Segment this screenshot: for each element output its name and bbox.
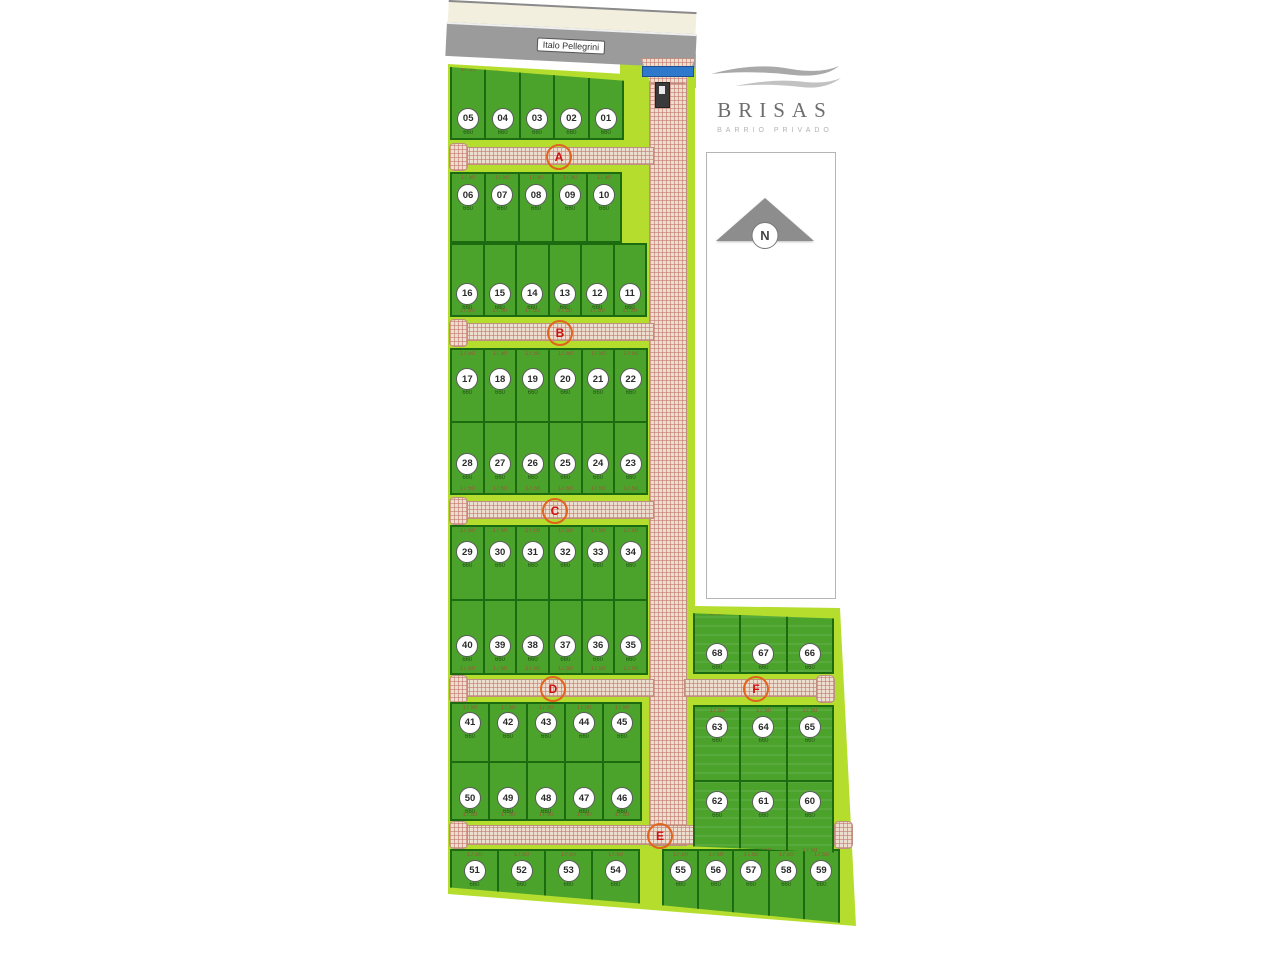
lot-22: 2217.50660 [613, 350, 646, 421]
lot-number-12: 12 [586, 283, 608, 305]
lot-row: 5017.506604917.506604817.506604717.50660… [452, 761, 640, 820]
lot-41: 4117.50660 [452, 704, 488, 761]
lot-area: 660 [517, 475, 548, 481]
lot-frontage: 17.50 [583, 528, 614, 534]
lot-area: 660 [550, 563, 581, 569]
lot-area: 660 [452, 130, 484, 136]
lot-area: 660 [604, 734, 640, 740]
lot-12: 1217.50660 [580, 245, 613, 315]
lot-number-36: 36 [587, 635, 609, 657]
lot-area: 660 [550, 390, 581, 396]
lot-number-13: 13 [554, 283, 576, 305]
lot-number-16: 16 [456, 283, 478, 305]
lot-number-18: 18 [489, 368, 511, 390]
lot-area: 660 [485, 657, 516, 663]
lot-frontage: 17.50 [485, 666, 516, 672]
lot-number-38: 38 [522, 635, 544, 657]
street-label-F: F [743, 676, 769, 702]
lot-area: 660 [485, 390, 516, 396]
lot-number-65: 65 [799, 716, 821, 738]
lot-number-43: 43 [535, 712, 557, 734]
lot-number-40: 40 [456, 635, 478, 657]
lot-number-60: 60 [799, 791, 821, 813]
lot-row: 6317.506606417.506606517.50660 [695, 707, 832, 780]
entrance-gate-bar [642, 66, 694, 77]
street-E-bulb-left [449, 821, 468, 849]
lot-number-09: 09 [559, 184, 581, 206]
lot-frontage: 17.50 [452, 528, 483, 534]
lot-08: 0817.50660 [518, 174, 552, 241]
lot-area: 660 [486, 130, 518, 136]
lot-area: 660 [664, 882, 697, 888]
lot-number-37: 37 [554, 635, 576, 657]
lot-area: 660 [588, 206, 620, 212]
lot-48: 4817.50660 [526, 763, 564, 820]
lot-number-22: 22 [620, 368, 642, 390]
lot-09: 0917.50660 [552, 174, 586, 241]
lot-number-66: 66 [799, 643, 821, 665]
lot-29: 2917.50660 [452, 527, 483, 599]
lot-number-28: 28 [456, 453, 478, 475]
lot-17: 1717.50660 [452, 350, 483, 421]
lot-area: 660 [490, 809, 526, 815]
lot-frontage: 17.50 [490, 705, 526, 711]
lot-number-55: 55 [670, 860, 692, 882]
lot-frontage: 17.50 [615, 528, 646, 534]
lot-frontage: 17.50 [741, 708, 785, 714]
waves-icon [705, 60, 845, 96]
lot-frontage: 17.50 [517, 666, 548, 672]
lot-04: 0417.50660 [484, 66, 518, 138]
lot-number-07: 07 [491, 184, 513, 206]
lot-area: 660 [452, 882, 497, 888]
north-arrow: N [712, 198, 818, 250]
lot-23: 2317.50660 [613, 423, 646, 494]
lot-area: 660 [582, 305, 613, 311]
lot-frontage: 17.50 [499, 852, 544, 858]
lot-25: 2517.50660 [548, 423, 581, 494]
lot-area: 660 [583, 475, 614, 481]
lot-36: 3617.50660 [581, 601, 614, 673]
lot-20: 2017.50660 [548, 350, 581, 421]
lot-frontage: 17.50 [604, 705, 640, 711]
lot-block-5: 2917.506603017.506603117.506603217.50660… [450, 525, 648, 675]
lot-area: 660 [517, 657, 548, 663]
lot-row: 4017.506603917.506603817.506603717.50660… [452, 599, 646, 673]
lot-number-57: 57 [740, 860, 762, 882]
lot-05: 0517.50660 [452, 66, 484, 138]
lot-number-15: 15 [489, 283, 511, 305]
lot-area: 660 [699, 882, 732, 888]
street-B-bulb-left [449, 319, 468, 347]
lot-64: 6417.50660 [739, 707, 785, 780]
lot-45: 4517.50660 [602, 704, 640, 761]
lot-21: 2117.50660 [581, 350, 614, 421]
lot-number-51: 51 [464, 860, 486, 882]
lot-area: 660 [452, 305, 483, 311]
street-label-E: E [647, 823, 673, 849]
lot-frontage: 17.50 [452, 705, 488, 711]
lot-frontage: 17.50 [485, 351, 516, 357]
lot-area: 660 [695, 665, 739, 671]
lot-06: 0617.50660 [452, 174, 484, 241]
lot-number-33: 33 [587, 541, 609, 563]
lot-area: 660 [741, 738, 785, 744]
lot-area: 660 [517, 390, 548, 396]
lot-35: 3517.50660 [613, 601, 646, 673]
lot-area: 660 [770, 882, 803, 888]
lot-32: 3217.50660 [548, 527, 581, 599]
lot-area: 660 [490, 734, 526, 740]
lot-frontage: 17.50 [566, 705, 602, 711]
lot-38: 3817.50660 [515, 601, 548, 673]
lot-68: 6817.50660 [695, 610, 739, 672]
lot-frontage: 17.50 [550, 666, 581, 672]
lot-number-56: 56 [705, 860, 727, 882]
lot-frontage: 17.50 [583, 351, 614, 357]
lot-frontage: 17.50 [664, 852, 697, 858]
lot-number-47: 47 [573, 787, 595, 809]
logo-wordmark: BRISAS [700, 98, 850, 123]
lot-number-42: 42 [497, 712, 519, 734]
lot-area: 660 [566, 734, 602, 740]
street-A-bulb-left [449, 143, 468, 171]
lot-63: 6317.50660 [695, 707, 739, 780]
lot-40: 4017.50660 [452, 601, 483, 673]
lot-10: 1017.50660 [586, 174, 620, 241]
lot-number-58: 58 [775, 860, 797, 882]
lot-frontage: 17.50 [734, 852, 767, 858]
lot-row: 2917.506603017.506603117.506603217.50660… [452, 527, 646, 599]
lot-frontage: 17.50 [695, 708, 739, 714]
lot-frontage: 17.50 [805, 852, 838, 858]
lot-number-21: 21 [587, 368, 609, 390]
lot-area: 660 [695, 813, 739, 819]
lot-area: 660 [615, 305, 646, 311]
lot-number-64: 64 [752, 716, 774, 738]
lot-area: 660 [452, 206, 484, 212]
site-plan-canvas: Italo Pellegrini ABCDEF0517.506600417.50… [0, 0, 1280, 960]
lot-area: 660 [485, 563, 516, 569]
north-label: N [752, 222, 779, 249]
street-label-B: B [547, 320, 573, 346]
lot-area: 660 [615, 657, 646, 663]
lot-block-9: 6817.506606717.506606617.50660 [693, 608, 834, 674]
lot-number-62: 62 [706, 791, 728, 813]
lot-number-02: 02 [560, 108, 582, 130]
lot-62: 6217.50660 [695, 782, 739, 855]
lot-42: 4217.50660 [488, 704, 526, 761]
lot-number-50: 50 [459, 787, 481, 809]
lot-number-53: 53 [558, 860, 580, 882]
lot-61: 6117.50660 [739, 782, 785, 855]
lot-area: 660 [695, 738, 739, 744]
lot-46: 4617.50660 [602, 763, 640, 820]
lot-number-08: 08 [525, 184, 547, 206]
lot-number-03: 03 [526, 108, 548, 130]
street-D-bulb-left [449, 675, 468, 703]
lot-area: 660 [550, 657, 581, 663]
lot-area: 660 [615, 475, 646, 481]
lot-number-49: 49 [497, 787, 519, 809]
lot-frontage: 17.50 [485, 528, 516, 534]
lot-number-39: 39 [489, 635, 511, 657]
lot-65: 6517.50660 [786, 707, 832, 780]
lot-number-44: 44 [573, 712, 595, 734]
road-name-label: Italo Pellegrini [536, 37, 605, 54]
lot-number-45: 45 [611, 712, 633, 734]
lot-area: 660 [550, 305, 581, 311]
lot-number-59: 59 [810, 860, 832, 882]
lot-frontage: 17.50 [583, 486, 614, 492]
lot-number-06: 06 [457, 184, 479, 206]
lot-area: 660 [485, 305, 516, 311]
lot-row: 2817.506602717.506602617.506602517.50660… [452, 421, 646, 494]
lot-area: 660 [517, 563, 548, 569]
lot-area: 660 [452, 475, 483, 481]
brisas-logo: BRISAS BARRIO PRIVADO [700, 60, 850, 140]
lot-number-27: 27 [489, 453, 511, 475]
main-street-vertical [649, 80, 687, 846]
lot-number-17: 17 [456, 368, 478, 390]
lot-area: 660 [485, 475, 516, 481]
lot-number-24: 24 [587, 453, 609, 475]
lot-58: 5817.50660 [768, 851, 803, 923]
lot-block-4: 1717.506601817.506601917.506602017.50660… [450, 348, 648, 495]
lot-frontage: 17.50 [550, 351, 581, 357]
lot-26: 2617.50660 [515, 423, 548, 494]
lot-block-2: 0617.506600717.506600817.506600917.50660… [450, 172, 622, 243]
lot-59: 5917.50660 [803, 851, 838, 923]
lot-area: 660 [604, 809, 640, 815]
street-label-D: D [540, 676, 566, 702]
lot-frontage: 17.50 [452, 486, 483, 492]
lot-frontage: 17.50 [452, 852, 497, 858]
lot-44: 4417.50660 [564, 704, 602, 761]
lot-frontage: 17.50 [615, 486, 646, 492]
lot-row: 6217.506606117.506606017.50660 [695, 780, 832, 855]
lot-number-25: 25 [554, 453, 576, 475]
lot-area: 660 [583, 390, 614, 396]
lot-27: 2717.50660 [483, 423, 516, 494]
lot-07: 0717.50660 [484, 174, 518, 241]
lot-row: 1617.506601517.506601417.506601317.50660… [452, 245, 645, 315]
lot-frontage: 17.50 [593, 852, 638, 858]
lot-50: 5017.50660 [452, 763, 488, 820]
street-label-C: C [542, 498, 568, 524]
lot-60: 6017.50660 [786, 782, 832, 855]
lot-30: 3017.50660 [483, 527, 516, 599]
lot-area: 660 [583, 563, 614, 569]
lot-number-34: 34 [620, 541, 642, 563]
lot-39: 3917.50660 [483, 601, 516, 673]
street-label-A: A [546, 144, 572, 170]
lot-block-6: 4117.506604217.506604317.506604417.50660… [450, 702, 642, 821]
lot-area: 660 [520, 206, 552, 212]
lot-area: 660 [554, 206, 586, 212]
lot-number-63: 63 [706, 716, 728, 738]
lot-area: 660 [566, 809, 602, 815]
lot-frontage: 17.50 [615, 666, 646, 672]
logo-tagline: BARRIO PRIVADO [700, 127, 850, 134]
lot-number-67: 67 [752, 643, 774, 665]
lot-43: 4317.50660 [526, 704, 564, 761]
lot-34: 3417.50660 [613, 527, 646, 599]
lot-number-10: 10 [593, 184, 615, 206]
lot-33: 3317.50660 [581, 527, 614, 599]
lot-frontage: 17.50 [583, 666, 614, 672]
lot-number-61: 61 [752, 791, 774, 813]
lot-frontage: 17.50 [517, 528, 548, 534]
lot-28: 2817.50660 [452, 423, 483, 494]
lot-number-54: 54 [605, 860, 627, 882]
lot-area: 660 [452, 734, 488, 740]
lot-number-32: 32 [554, 541, 576, 563]
lot-area: 660 [741, 813, 785, 819]
lot-15: 1517.50660 [483, 245, 516, 315]
lot-area: 660 [741, 665, 785, 671]
lot-51: 5117.50660 [452, 851, 497, 909]
lot-area: 660 [517, 305, 548, 311]
lot-frontage: 17.50 [550, 528, 581, 534]
lot-frontage: 17.50 [770, 852, 803, 858]
lot-number-41: 41 [459, 712, 481, 734]
lot-block-8: 5517.506605617.506605717.506605817.50660… [662, 849, 840, 925]
lot-16: 1617.50660 [452, 245, 483, 315]
lot-number-23: 23 [620, 453, 642, 475]
lot-number-05: 05 [457, 108, 479, 130]
lot-area: 660 [550, 475, 581, 481]
lot-frontage: 17.50 [486, 175, 518, 181]
lot-area: 660 [528, 809, 564, 815]
lot-03: 0317.50660 [519, 66, 553, 138]
lot-area: 660 [555, 130, 587, 136]
lot-number-46: 46 [611, 787, 633, 809]
lot-area: 660 [452, 657, 483, 663]
lot-area: 660 [734, 882, 767, 888]
lot-area: 660 [805, 882, 838, 888]
lot-number-04: 04 [492, 108, 514, 130]
lot-57: 5717.50660 [732, 851, 767, 923]
street-F-bulb-right [816, 675, 835, 703]
lot-frontage: 17.50 [452, 666, 483, 672]
lot-18: 1817.50660 [483, 350, 516, 421]
lot-frontage: 17.50 [550, 486, 581, 492]
lot-number-52: 52 [511, 860, 533, 882]
lot-number-48: 48 [535, 787, 557, 809]
lot-frontage: 17.50 [485, 486, 516, 492]
lot-area: 660 [788, 665, 832, 671]
street-C-bulb-left [449, 497, 468, 525]
lot-number-20: 20 [554, 368, 576, 390]
lot-block-3: 1617.506601517.506601417.506601317.50660… [450, 243, 647, 317]
lot-number-11: 11 [619, 283, 641, 305]
lot-number-26: 26 [522, 453, 544, 475]
lot-frontage: 17.50 [517, 486, 548, 492]
lot-67: 6717.50660 [739, 610, 785, 672]
lot-frontage: 17.50 [554, 175, 586, 181]
lot-area: 660 [452, 809, 488, 815]
lot-block-10: 6317.506606417.506606517.506606217.50660… [693, 705, 834, 857]
lot-31: 3117.50660 [515, 527, 548, 599]
lot-14: 1417.50660 [515, 245, 548, 315]
lot-area: 660 [590, 130, 622, 136]
lot-frontage: 17.50 [615, 351, 646, 357]
lot-area: 660 [788, 813, 832, 819]
lot-area: 660 [452, 563, 483, 569]
lot-13: 1317.50660 [548, 245, 581, 315]
lot-number-30: 30 [489, 541, 511, 563]
lot-frontage: 17.50 [452, 175, 484, 181]
lot-number-19: 19 [522, 368, 544, 390]
lot-area: 660 [615, 563, 646, 569]
lot-row: 0617.506600717.506600817.506600917.50660… [452, 174, 620, 241]
lot-24: 2417.50660 [581, 423, 614, 494]
street-E-bulb-right [834, 821, 853, 849]
lot-area: 660 [615, 390, 646, 396]
lot-37: 3717.50660 [548, 601, 581, 673]
lot-row: 1717.506601817.506601917.506602017.50660… [452, 350, 646, 421]
lot-number-29: 29 [456, 541, 478, 563]
lot-frontage: 17.50 [588, 175, 620, 181]
lot-number-35: 35 [620, 635, 642, 657]
lot-area: 660 [499, 882, 544, 888]
lot-11: 1117.50660 [613, 245, 646, 315]
lot-frontage: 17.50 [788, 708, 832, 714]
lot-frontage: 17.50 [452, 351, 483, 357]
lot-frontage: 17.50 [699, 852, 732, 858]
lot-area: 660 [593, 882, 638, 888]
lot-number-68: 68 [706, 643, 728, 665]
lot-area: 660 [452, 390, 483, 396]
lot-number-01: 01 [595, 108, 617, 130]
lot-47: 4717.50660 [564, 763, 602, 820]
lot-frontage: 17.50 [517, 351, 548, 357]
lot-area: 660 [528, 734, 564, 740]
guard-booth [655, 82, 670, 108]
lot-frontage: 17.50 [520, 175, 552, 181]
lot-area: 660 [546, 882, 591, 888]
lot-19: 1917.50660 [515, 350, 548, 421]
lot-number-14: 14 [521, 283, 543, 305]
lot-row: 4117.506604217.506604317.506604417.50660… [452, 704, 640, 761]
lot-frontage: 17.50 [528, 705, 564, 711]
lot-number-31: 31 [522, 541, 544, 563]
lot-area: 660 [788, 738, 832, 744]
lot-row: 6817.506606717.506606617.50660 [695, 610, 832, 672]
lot-66: 6617.50660 [786, 610, 832, 672]
booth-window [659, 86, 665, 94]
lot-area: 660 [486, 206, 518, 212]
lot-area: 660 [583, 657, 614, 663]
lot-frontage: 17.50 [546, 852, 591, 858]
lot-frontage: 17.50 [590, 67, 622, 73]
lot-49: 4917.50660 [488, 763, 526, 820]
lot-area: 660 [521, 130, 553, 136]
